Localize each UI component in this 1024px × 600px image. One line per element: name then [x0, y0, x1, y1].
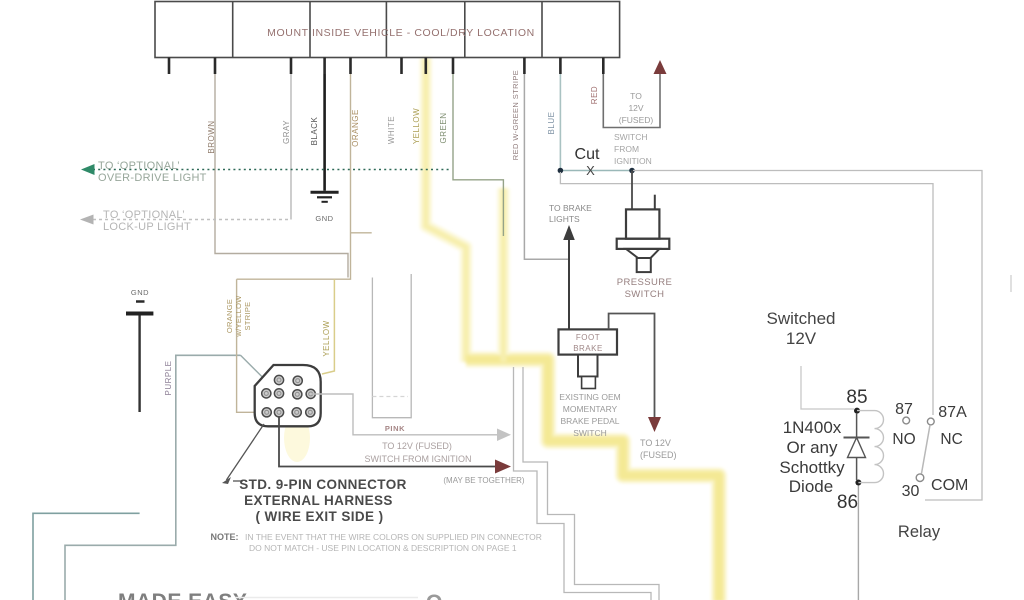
- svg-text:(MAY BE TOGETHER): (MAY BE TOGETHER): [443, 476, 525, 485]
- svg-text:85: 85: [846, 387, 867, 408]
- svg-text:TO 12V (FUSED): TO 12V (FUSED): [382, 441, 452, 451]
- svg-text:FROM: FROM: [614, 144, 639, 154]
- svg-text:EXTERNAL HARNESS: EXTERNAL HARNESS: [244, 493, 393, 508]
- svg-text:TO ‘OPTIONAL’: TO ‘OPTIONAL’: [103, 209, 185, 221]
- svg-text:LOCK-UP LIGHT: LOCK-UP LIGHT: [103, 221, 191, 233]
- svg-text:RED W-GREEN STRIPE: RED W-GREEN STRIPE: [511, 70, 520, 160]
- svg-text:PINK: PINK: [385, 424, 405, 433]
- svg-text:WHITE: WHITE: [387, 116, 396, 144]
- svg-text:FOOT: FOOT: [576, 333, 600, 342]
- svg-text:30: 30: [902, 483, 920, 500]
- svg-text:( WIRE EXIT SIDE ): ( WIRE EXIT SIDE ): [256, 509, 384, 524]
- svg-text:COM: COM: [931, 477, 968, 494]
- svg-text:BLACK: BLACK: [310, 116, 319, 145]
- svg-text:NC: NC: [940, 431, 962, 448]
- svg-text:SWITCH: SWITCH: [573, 428, 607, 438]
- svg-text:DO NOT MATCH - USE PIN LOCATIO: DO NOT MATCH - USE PIN LOCATION & DESCRI…: [249, 543, 517, 553]
- svg-text:12V: 12V: [786, 329, 817, 348]
- svg-text:(FUSED): (FUSED): [619, 115, 654, 125]
- svg-text:(FUSED): (FUSED): [640, 450, 677, 460]
- svg-text:TO BRAKE: TO BRAKE: [549, 203, 592, 213]
- svg-text:BRAKE: BRAKE: [573, 344, 603, 353]
- svg-text:Switched: Switched: [767, 309, 836, 328]
- svg-text:OVER-DRIVE LIGHT: OVER-DRIVE LIGHT: [98, 172, 207, 184]
- svg-text:LIGHTS: LIGHTS: [549, 214, 580, 224]
- svg-text:RED: RED: [590, 86, 599, 104]
- svg-text:GREEN: GREEN: [439, 113, 448, 144]
- svg-text:GND: GND: [315, 214, 333, 223]
- svg-text:Schottky: Schottky: [779, 458, 845, 477]
- svg-text:86: 86: [837, 492, 858, 513]
- svg-text:87: 87: [895, 401, 913, 418]
- svg-text:SWITCH: SWITCH: [614, 132, 648, 142]
- svg-text:ORANGE: ORANGE: [351, 109, 360, 147]
- svg-text:Cut: Cut: [575, 146, 600, 163]
- svg-text:X: X: [586, 163, 595, 178]
- svg-text:w/YELLOW: w/YELLOW: [234, 295, 243, 338]
- svg-text:TO 12V: TO 12V: [640, 438, 671, 448]
- svg-text:Or any: Or any: [786, 438, 838, 457]
- svg-text:PURPLE: PURPLE: [164, 360, 173, 395]
- svg-text:MOMENTARY: MOMENTARY: [563, 404, 618, 414]
- svg-text:GRAY: GRAY: [282, 120, 291, 144]
- svg-text:ORANGE: ORANGE: [225, 299, 234, 333]
- svg-text:BRAKE PEDAL: BRAKE PEDAL: [560, 416, 619, 426]
- svg-text:TO: TO: [630, 91, 642, 101]
- svg-text:12V: 12V: [628, 103, 643, 113]
- svg-text:MADE EASY: MADE EASY: [118, 590, 247, 600]
- svg-text:Diode: Diode: [789, 477, 833, 496]
- svg-text:MOUNT INSIDE VEHICLE - COOL/DR: MOUNT INSIDE VEHICLE - COOL/DRY LOCATION: [267, 27, 535, 39]
- svg-text:YELLOW: YELLOW: [412, 108, 421, 144]
- svg-text:SWITCH FROM IGNITION: SWITCH FROM IGNITION: [365, 454, 472, 464]
- svg-text:IN THE EVENT THAT THE WIRE COL: IN THE EVENT THAT THE WIRE COLORS ON SUP…: [245, 532, 542, 542]
- svg-text:BLUE: BLUE: [547, 112, 556, 135]
- svg-text:SWITCH: SWITCH: [625, 289, 665, 300]
- svg-text:BROWN: BROWN: [207, 120, 216, 153]
- svg-text:87A: 87A: [938, 404, 967, 421]
- svg-text:NOTE:: NOTE:: [211, 532, 239, 542]
- svg-text:1N400x: 1N400x: [783, 418, 842, 437]
- svg-text:EXISTING OEM: EXISTING OEM: [559, 392, 620, 402]
- svg-text:PRESSURE: PRESSURE: [617, 277, 672, 288]
- svg-text:Relay: Relay: [898, 523, 941, 541]
- svg-text:STD. 9-PIN CONNECTOR: STD. 9-PIN CONNECTOR: [239, 477, 407, 492]
- svg-text:GND: GND: [131, 288, 149, 297]
- svg-text:IGNITION: IGNITION: [614, 156, 652, 166]
- svg-text:YELLOW: YELLOW: [322, 320, 331, 356]
- svg-text:NO: NO: [892, 431, 915, 448]
- svg-text:STRIPE: STRIPE: [243, 302, 252, 331]
- svg-text:TO ‘OPTIONAL’: TO ‘OPTIONAL’: [98, 160, 180, 172]
- svg-text:O: O: [426, 591, 442, 600]
